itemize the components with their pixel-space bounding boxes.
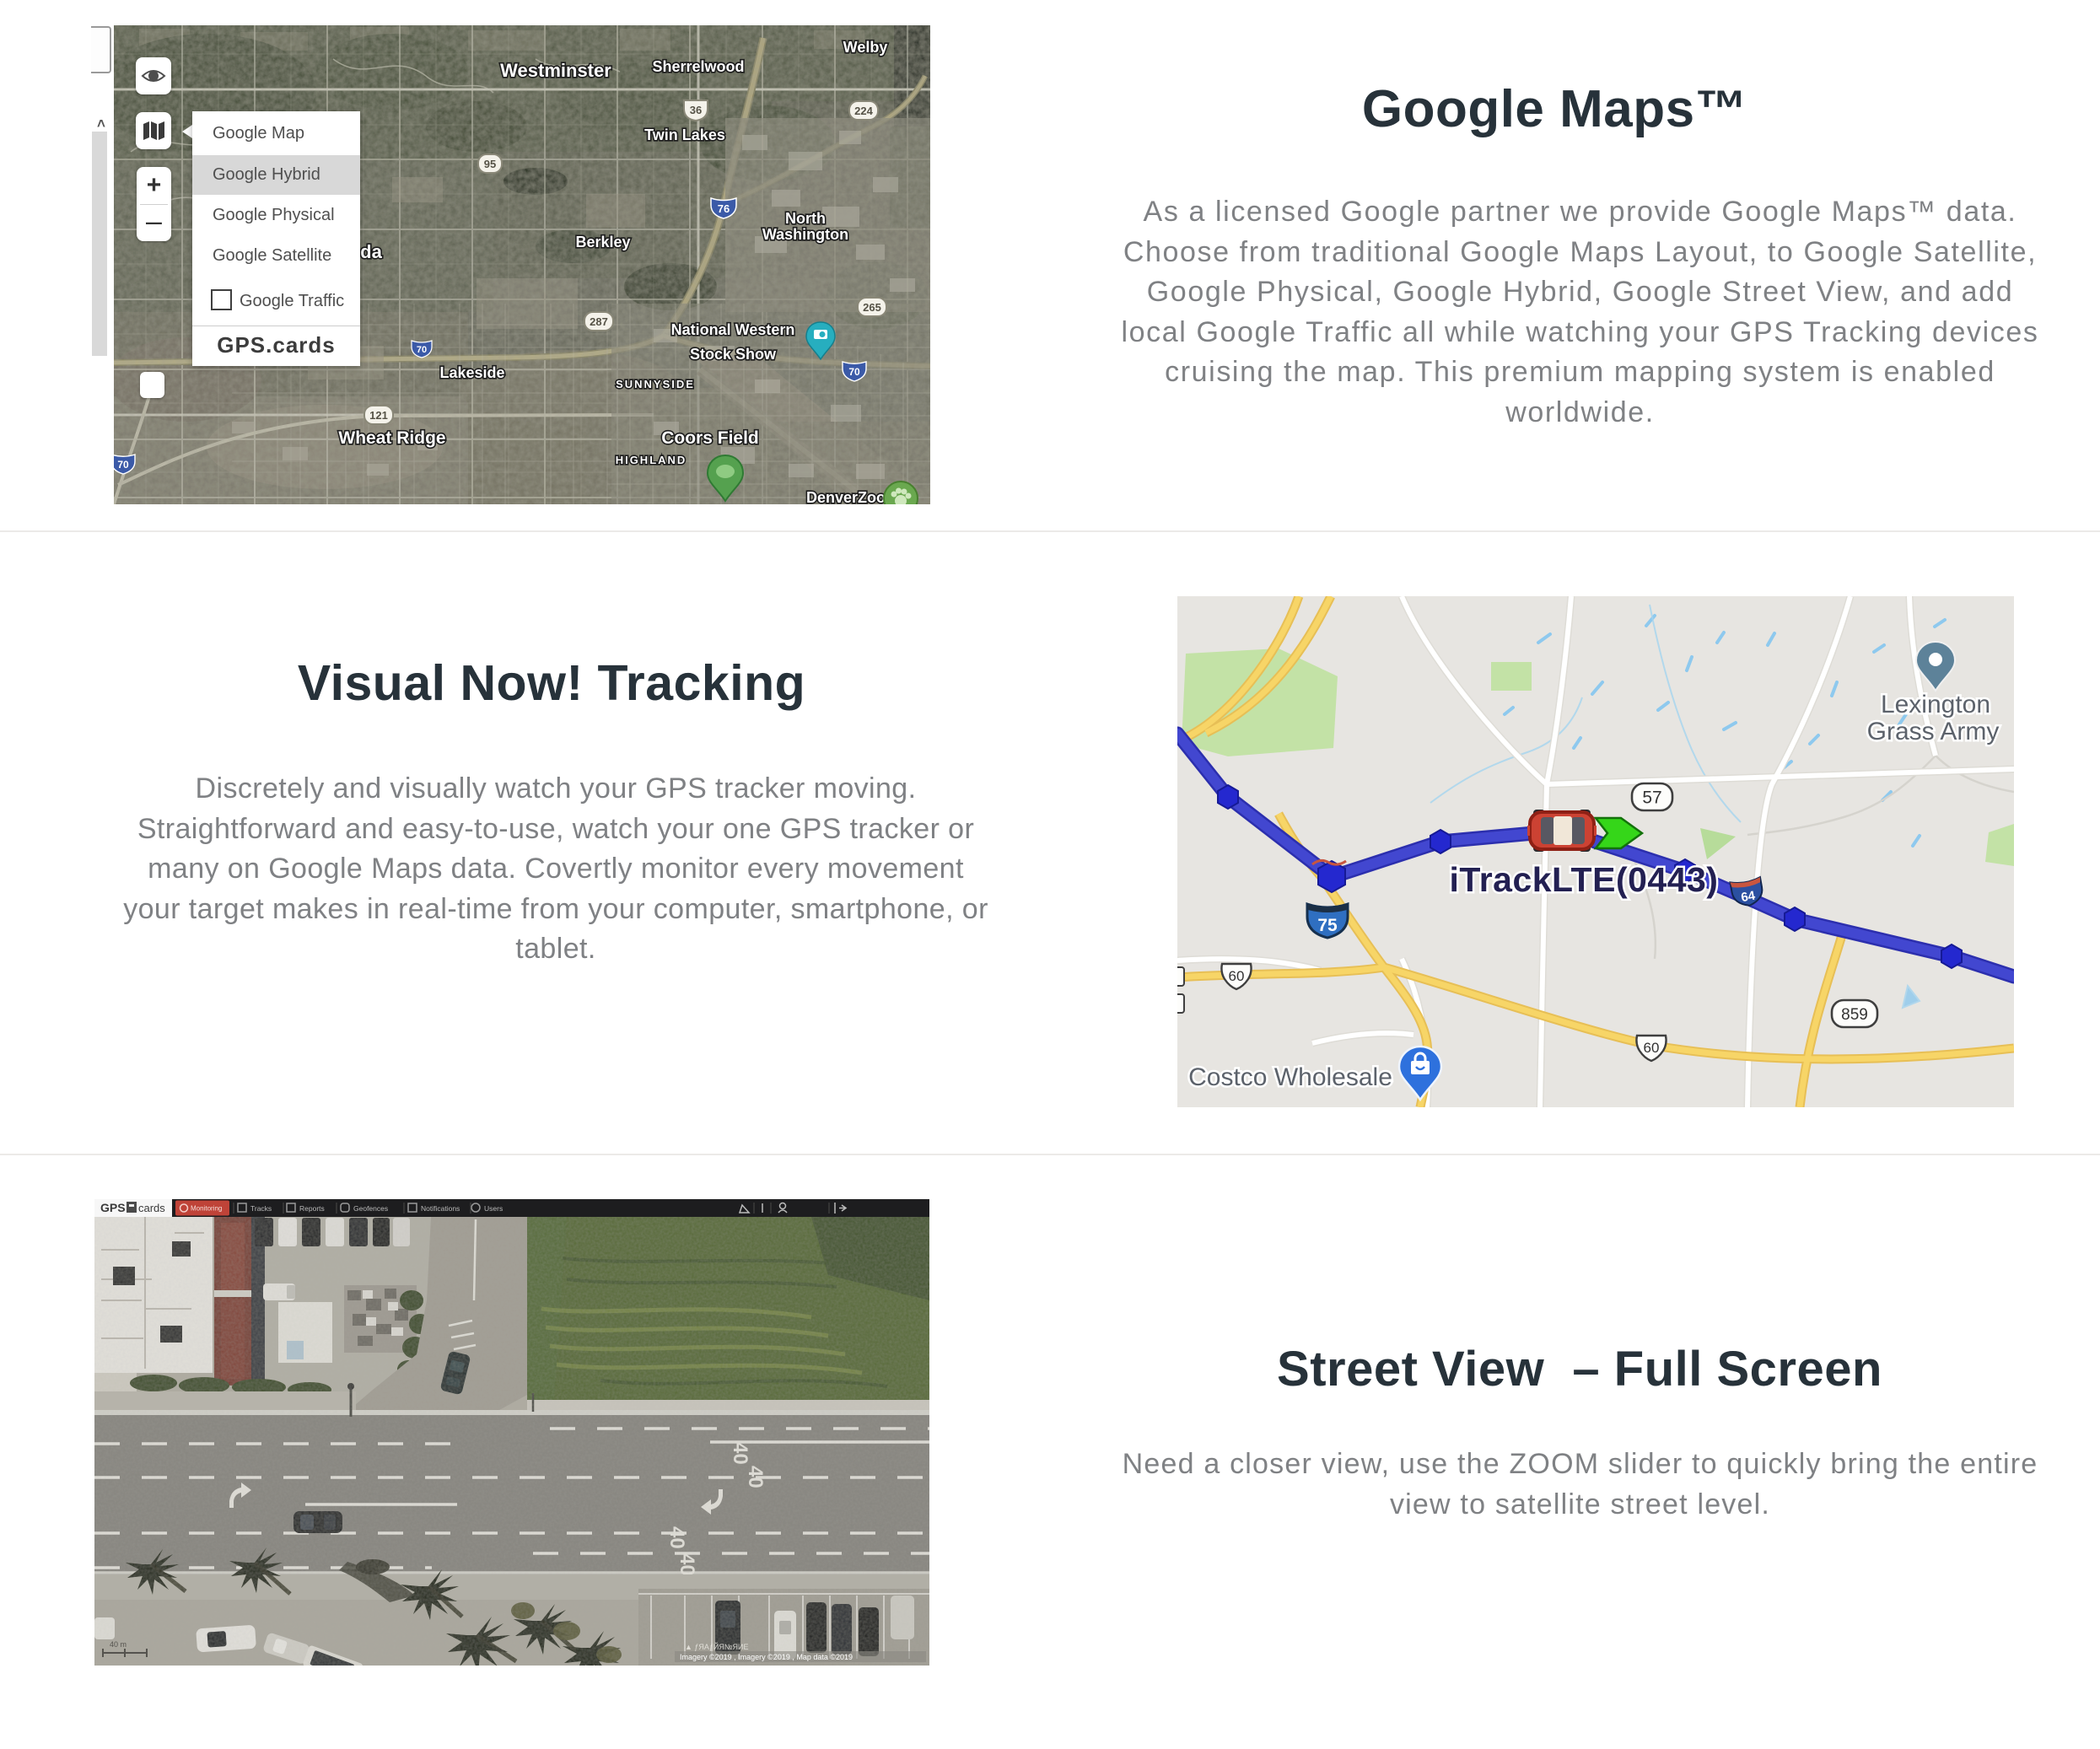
svg-text:Welby: Welby <box>843 39 888 56</box>
svg-text:57: 57 <box>1642 788 1661 808</box>
svg-text:75: 75 <box>1317 916 1338 935</box>
svg-text:Westminster: Westminster <box>500 60 611 81</box>
svg-text:70: 70 <box>848 366 860 378</box>
svg-text:GPS: GPS <box>100 1201 126 1214</box>
svg-text:da: da <box>360 241 382 262</box>
svg-text:Users: Users <box>484 1204 503 1213</box>
svg-text:Sherrelwood: Sherrelwood <box>652 58 744 75</box>
svg-text:70: 70 <box>117 459 129 471</box>
svg-text:Lakeside: Lakeside <box>439 364 504 381</box>
svg-text:Notifications: Notifications <box>421 1204 460 1213</box>
svg-text:iTrackLTE(0443): iTrackLTE(0443) <box>1450 860 1719 899</box>
svg-text:76: 76 <box>718 202 730 215</box>
svg-text:SUNNYSIDE: SUNNYSIDE <box>616 378 695 390</box>
svg-text:60: 60 <box>1644 1040 1660 1056</box>
svg-text:859: 859 <box>1841 1006 1868 1024</box>
svg-text:HIGHLAND: HIGHLAND <box>616 454 687 466</box>
svg-text:Monitoring: Monitoring <box>191 1205 222 1213</box>
svg-text:Grass Army: Grass Army <box>1867 718 2000 745</box>
svg-text:▲ ƒЯАƒЙЯ№ЯИЕ: ▲ ƒЯАƒЙЯ№ЯИЕ <box>685 1642 749 1651</box>
svg-text:36: 36 <box>690 104 702 116</box>
svg-text:40 m: 40 m <box>110 1640 127 1649</box>
svg-text:Wheat Ridge: Wheat Ridge <box>338 428 445 448</box>
svg-text:95: 95 <box>484 158 496 170</box>
svg-text:121: 121 <box>369 409 388 422</box>
svg-text:North: North <box>785 210 826 227</box>
svg-text:Costco Wholesale: Costco Wholesale <box>1188 1063 1392 1091</box>
svg-text:70: 70 <box>417 345 427 355</box>
svg-text:Stock Show: Stock Show <box>690 346 777 363</box>
svg-text:National Western: National Western <box>671 321 795 338</box>
svg-text:60: 60 <box>1229 968 1245 984</box>
svg-text:Washington: Washington <box>762 226 848 243</box>
svg-text:cards: cards <box>138 1202 165 1214</box>
svg-text:Berkley: Berkley <box>575 234 630 250</box>
svg-text:Reports: Reports <box>299 1204 325 1213</box>
svg-text:224: 224 <box>854 105 873 117</box>
svg-text:Twin Lakes: Twin Lakes <box>644 126 725 143</box>
svg-text:DenverZoo: DenverZoo <box>806 489 886 504</box>
svg-text:Imagery ©2019 , Imagery ©2019: Imagery ©2019 , Imagery ©2019 , Map data… <box>680 1653 853 1661</box>
svg-text:265: 265 <box>863 301 881 314</box>
svg-text:287: 287 <box>590 315 608 328</box>
svg-text:Geofences: Geofences <box>353 1204 388 1213</box>
svg-text:Coors Field: Coors Field <box>661 428 759 448</box>
svg-text:Lexington: Lexington <box>1881 691 1990 718</box>
svg-text:Tracks: Tracks <box>250 1204 272 1213</box>
